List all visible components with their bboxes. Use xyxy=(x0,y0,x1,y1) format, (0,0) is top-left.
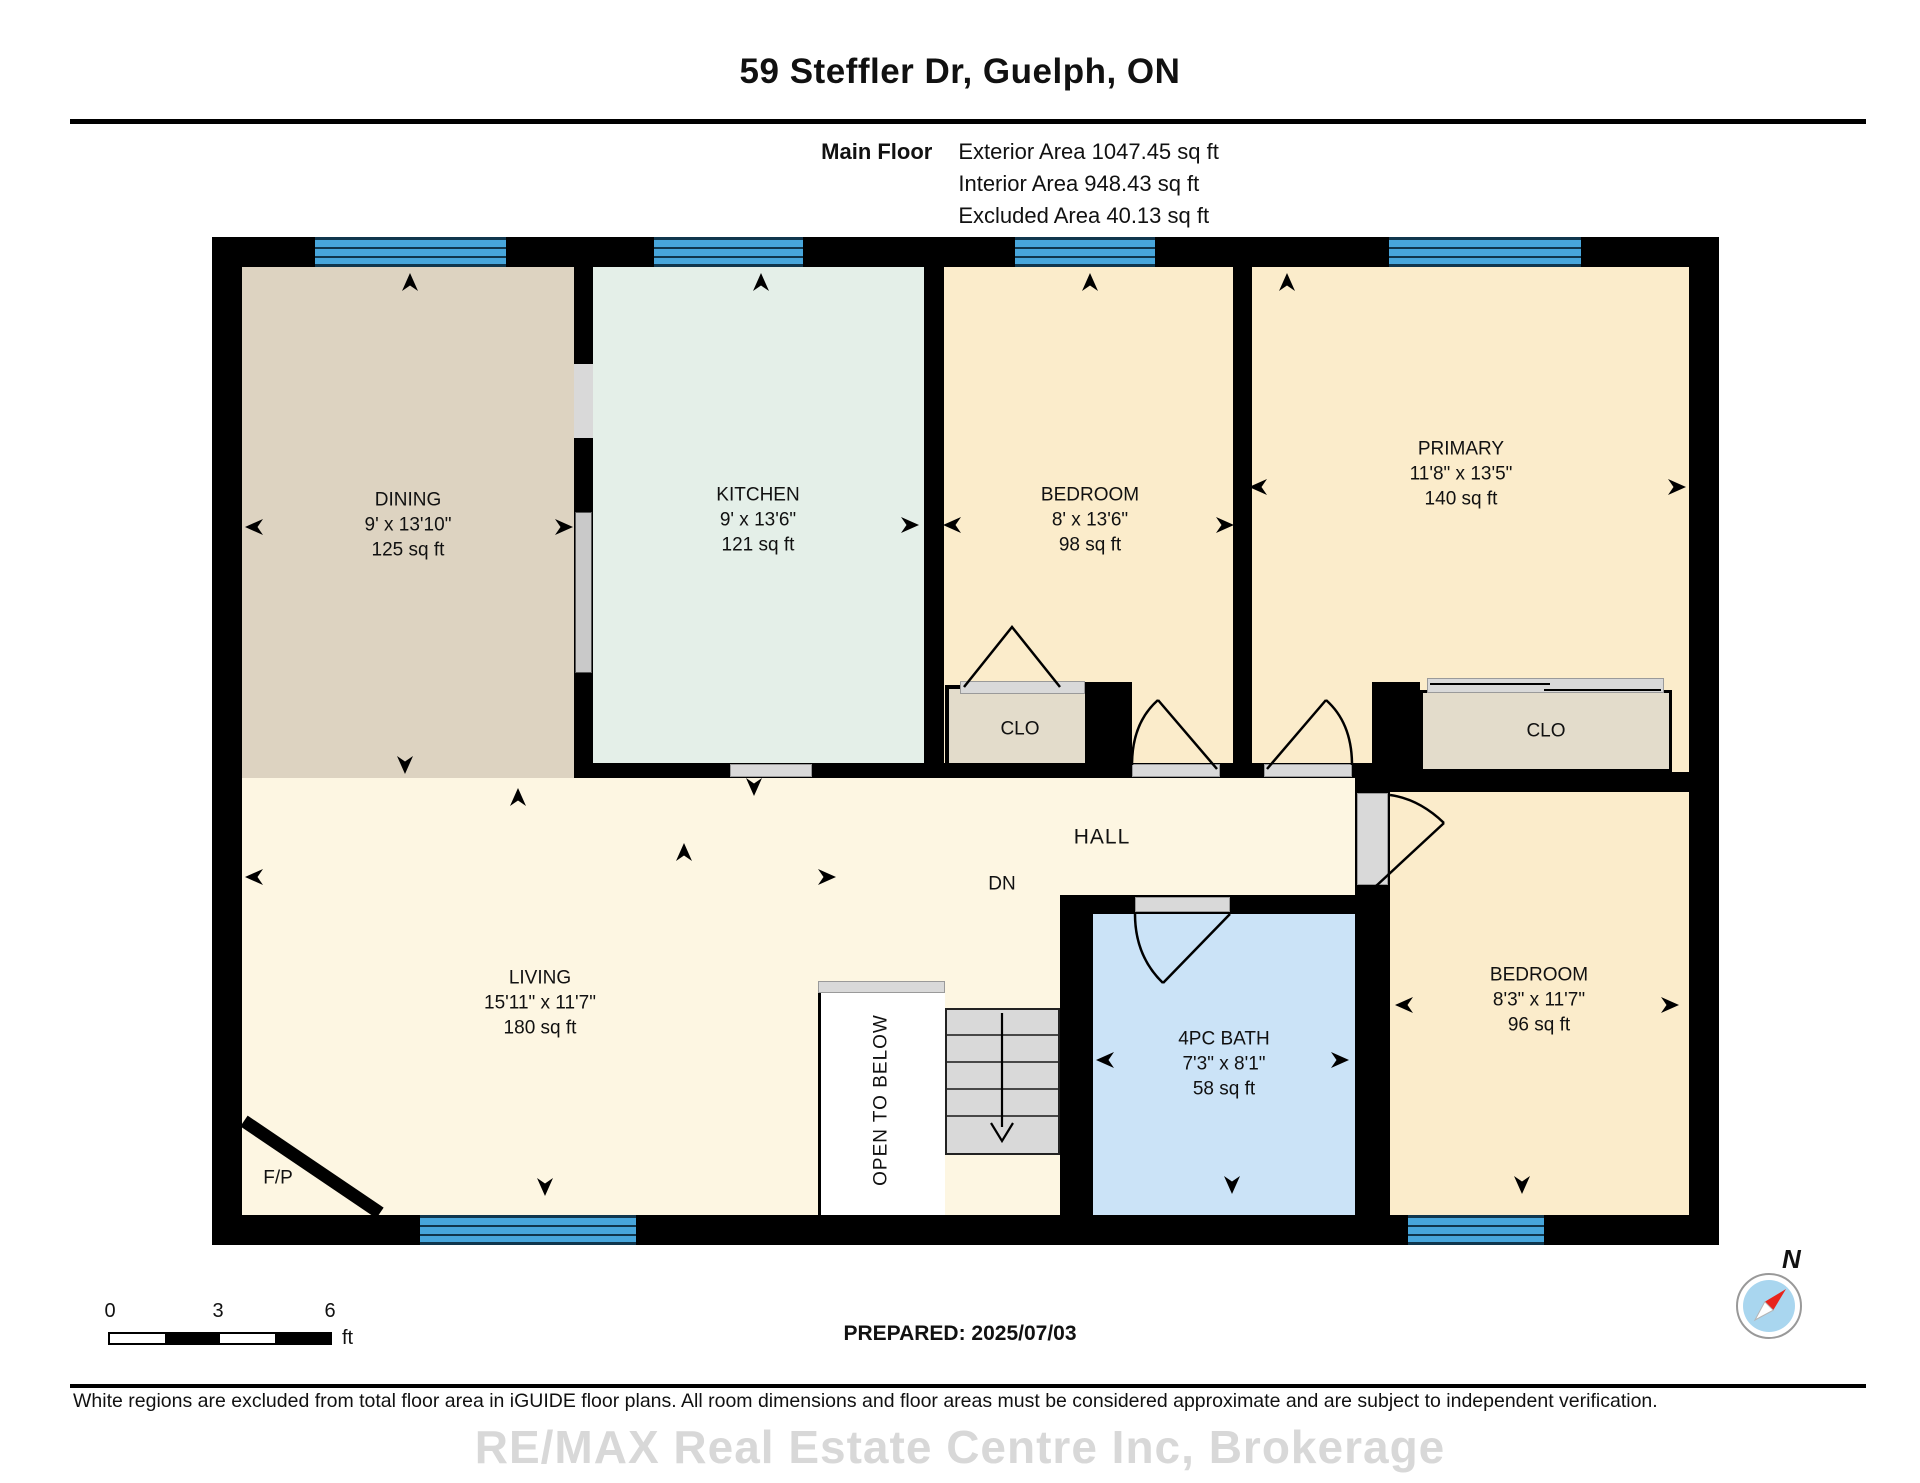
staircase xyxy=(945,1008,1060,1155)
room-area: 125 sq ft xyxy=(365,538,452,563)
room-label-bedroom-br: BEDROOM 8'3" x 11'7" 96 sq ft xyxy=(1490,963,1588,1038)
door-opening xyxy=(960,681,1085,694)
room-label-bath: 4PC BATH 7'3" x 8'1" 58 sq ft xyxy=(1178,1027,1270,1102)
footer-rule xyxy=(70,1384,1866,1388)
prepared-date: PREPARED: 2025/07/03 xyxy=(0,1322,1920,1346)
excluded-area: Excluded Area 40.13 sq ft xyxy=(958,200,1219,232)
fireplace-label: F/P xyxy=(263,1166,293,1191)
room-name: DINING xyxy=(365,488,452,513)
window xyxy=(1015,237,1155,267)
wall xyxy=(1233,267,1252,778)
room-area: 98 sq ft xyxy=(1041,533,1139,558)
stairs-dn-label: DN xyxy=(988,872,1015,897)
page-title: 59 Steffler Dr, Guelph, ON xyxy=(0,52,1920,92)
open-to-below-label: OPEN TO BELOW xyxy=(869,1014,894,1186)
disclaimer-text: White regions are excluded from total fl… xyxy=(73,1390,1658,1413)
room-dims: 8' x 13'6" xyxy=(1041,508,1139,533)
room-dims: 7'3" x 8'1" xyxy=(1178,1052,1270,1077)
wall-opening xyxy=(574,364,593,438)
room-dims: 9' x 13'10" xyxy=(365,513,452,538)
window xyxy=(1389,237,1581,267)
door-opening xyxy=(1264,764,1352,777)
floor-plan-page: 59 Steffler Dr, Guelph, ON Main Floor Ex… xyxy=(0,0,1920,1483)
door-opening xyxy=(1135,897,1230,912)
window xyxy=(1408,1215,1544,1245)
room-dims: 8'3" x 11'7" xyxy=(1490,988,1588,1013)
wall xyxy=(1372,682,1420,792)
door-opening xyxy=(1132,764,1220,777)
door-opening xyxy=(1427,678,1664,693)
room-dims: 9' x 13'6" xyxy=(716,508,799,533)
room-area: 58 sq ft xyxy=(1178,1077,1270,1102)
wall xyxy=(1085,682,1132,778)
wall xyxy=(1060,914,1093,1215)
window xyxy=(654,237,803,267)
room-label-primary: PRIMARY 11'8" x 13'5" 140 sq ft xyxy=(1410,437,1513,512)
compass-north-label: N xyxy=(1782,1244,1801,1275)
door-opening xyxy=(730,764,812,777)
wall xyxy=(924,267,944,778)
area-lines: Exterior Area 1047.45 sq ft Interior Are… xyxy=(958,136,1219,232)
room-area: 96 sq ft xyxy=(1490,1013,1588,1038)
door-opening xyxy=(1357,793,1388,885)
wall xyxy=(212,237,242,1245)
room-name: 4PC BATH xyxy=(1178,1027,1270,1052)
floor-label: Main Floor xyxy=(821,136,932,232)
closet-left-label: CLO xyxy=(1000,717,1039,742)
room-area: 121 sq ft xyxy=(716,533,799,558)
scale-tick: 0 xyxy=(104,1300,115,1323)
room-name: PRIMARY xyxy=(1410,437,1513,462)
brokerage-watermark: RE/MAX Real Estate Centre Inc, Brokerage xyxy=(0,1420,1920,1474)
pocket-door xyxy=(575,512,592,673)
interior-area: Interior Area 948.43 sq ft xyxy=(958,168,1219,200)
room-area: 140 sq ft xyxy=(1410,487,1513,512)
door-opening xyxy=(818,981,945,993)
room-label-kitchen: KITCHEN 9' x 13'6" 121 sq ft xyxy=(716,483,799,558)
floor-plan: DINING 9' x 13'10" 125 sq ft KITCHEN 9' … xyxy=(212,237,1719,1245)
room-name: KITCHEN xyxy=(716,483,799,508)
floor-summary: Main Floor Exterior Area 1047.45 sq ft I… xyxy=(60,136,1920,232)
room-label-living: LIVING 15'11" x 11'7" 180 sq ft xyxy=(484,966,596,1041)
header-rule xyxy=(70,119,1866,124)
room-name: BEDROOM xyxy=(1490,963,1588,988)
scale-tick: 3 xyxy=(212,1300,223,1323)
closet-right-label: CLO xyxy=(1526,719,1565,744)
hall-label: HALL xyxy=(1074,825,1131,850)
window xyxy=(420,1215,636,1245)
room-label-dining: DINING 9' x 13'10" 125 sq ft xyxy=(365,488,452,563)
wall xyxy=(1689,237,1719,1245)
room-dims: 15'11" x 11'7" xyxy=(484,991,596,1016)
room-label-bedroom-top: BEDROOM 8' x 13'6" 98 sq ft xyxy=(1041,483,1139,558)
exterior-area: Exterior Area 1047.45 sq ft xyxy=(958,136,1219,168)
window xyxy=(315,237,506,267)
room-name: LIVING xyxy=(484,966,596,991)
room-dims: 11'8" x 13'5" xyxy=(1410,462,1513,487)
scale-tick: 6 xyxy=(324,1300,335,1323)
room-name: BEDROOM xyxy=(1041,483,1139,508)
room-area: 180 sq ft xyxy=(484,1016,596,1041)
compass-icon xyxy=(1734,1271,1804,1341)
